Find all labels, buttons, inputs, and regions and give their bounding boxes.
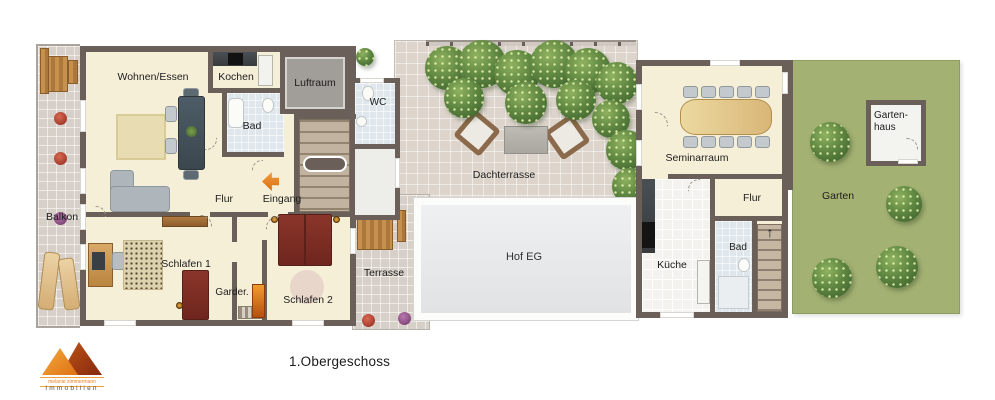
tree — [505, 82, 547, 124]
fridge — [258, 55, 273, 86]
chair — [737, 136, 752, 148]
wardrobe-orange — [252, 284, 265, 318]
sofa — [110, 186, 170, 212]
plant-pot — [54, 152, 67, 165]
terrace-label: Terrasse — [364, 267, 404, 279]
toilet — [262, 98, 274, 113]
chair — [755, 86, 770, 98]
tree — [876, 246, 918, 288]
tree — [356, 48, 374, 66]
wall — [210, 212, 268, 217]
shower — [718, 276, 749, 309]
floor-title: 1.Obergeschoss — [289, 354, 390, 369]
wardrobe-label: Garder. — [215, 287, 248, 298]
window — [710, 60, 740, 66]
seminar-room-label: Seminarraum — [665, 152, 728, 164]
bed-single — [182, 270, 209, 320]
table-plant — [186, 126, 197, 137]
window — [104, 320, 136, 326]
kitchen-right-label: Küche — [657, 259, 687, 271]
stairs-up-arrow-icon: ↑ — [763, 224, 777, 312]
chair — [737, 86, 752, 98]
roof-terrace-railing — [426, 40, 636, 46]
roof-terrace-label: Dachterrasse — [473, 169, 535, 181]
bed-split — [304, 215, 306, 265]
plant-pot — [54, 112, 67, 125]
kitchen-sink-unit — [697, 260, 710, 304]
garden-house-label: Garten- haus — [874, 110, 908, 134]
bed-knob — [176, 302, 183, 309]
plant-pot — [398, 312, 411, 325]
window — [80, 168, 86, 194]
tree — [556, 80, 596, 120]
tree — [886, 186, 922, 222]
hallway-right-label: Flur — [743, 192, 761, 204]
window — [360, 78, 384, 83]
chair — [719, 136, 734, 148]
courtyard-label: Hof EG — [506, 251, 542, 263]
dining-chair — [165, 106, 177, 122]
window — [80, 100, 86, 132]
chair — [701, 86, 716, 98]
window — [636, 84, 642, 110]
tree — [812, 258, 852, 298]
chair — [683, 136, 698, 148]
air-space-label: Luftraum — [294, 77, 335, 89]
kitchen-right-cooktop — [642, 222, 655, 248]
window — [660, 312, 694, 318]
desk-laptop — [92, 252, 105, 270]
company-logo: melanie zimmermann Immobilien — [40, 341, 108, 393]
window — [636, 140, 642, 166]
balcony-label: Balkon — [46, 211, 78, 223]
bedroom1-rug — [123, 240, 163, 290]
chair — [683, 86, 698, 98]
balcony-table — [46, 56, 68, 92]
wc-label: WC — [370, 97, 387, 108]
bathroom-right-label: Bad — [729, 242, 747, 253]
bed-knob — [333, 216, 340, 223]
living-room-label: Wohnen/Essen — [117, 71, 188, 83]
tree — [810, 122, 850, 162]
wall — [232, 212, 237, 242]
floor-plan-canvas: Balkon Dachterrasse Terrasse Hof EG — [0, 0, 995, 400]
tree — [596, 62, 638, 104]
dining-chair — [165, 138, 177, 154]
terrace-table — [504, 126, 548, 154]
seminar-table — [680, 99, 772, 135]
bedroom2-label: Schlafen 2 — [283, 294, 333, 306]
bathtub — [228, 98, 244, 128]
chair — [701, 136, 716, 148]
chair — [755, 136, 770, 148]
garden-wall — [788, 60, 793, 190]
terrace-door — [350, 228, 356, 254]
dining-chair — [183, 170, 199, 180]
bedroom1-label: Schlafen 1 — [161, 258, 211, 270]
window — [292, 320, 324, 326]
stair-handrail — [305, 158, 345, 170]
garden-house-label-line2: haus — [874, 122, 908, 134]
chair — [719, 86, 734, 98]
window — [395, 158, 400, 188]
balcony-chair — [68, 60, 78, 84]
balcony-door — [80, 204, 86, 230]
plant-pot — [362, 314, 375, 327]
entrance-label: Eingang — [263, 193, 302, 205]
bathroom-left-label: Bad — [243, 120, 262, 132]
window — [80, 244, 86, 270]
tree — [444, 78, 484, 118]
logo-tagline: Immobilien — [40, 385, 104, 392]
living-rug — [116, 114, 166, 160]
cooktop — [228, 53, 243, 65]
wc-sink — [356, 116, 367, 127]
bath-sink — [738, 258, 750, 272]
balcony-bench — [40, 48, 49, 94]
garden-house-label-line1: Garten- — [874, 110, 908, 122]
garden-house-door — [898, 159, 918, 164]
kitchen-label: Kochen — [218, 71, 254, 83]
garden-label: Garten — [822, 190, 854, 202]
hallway-left-label: Flur — [215, 193, 233, 205]
